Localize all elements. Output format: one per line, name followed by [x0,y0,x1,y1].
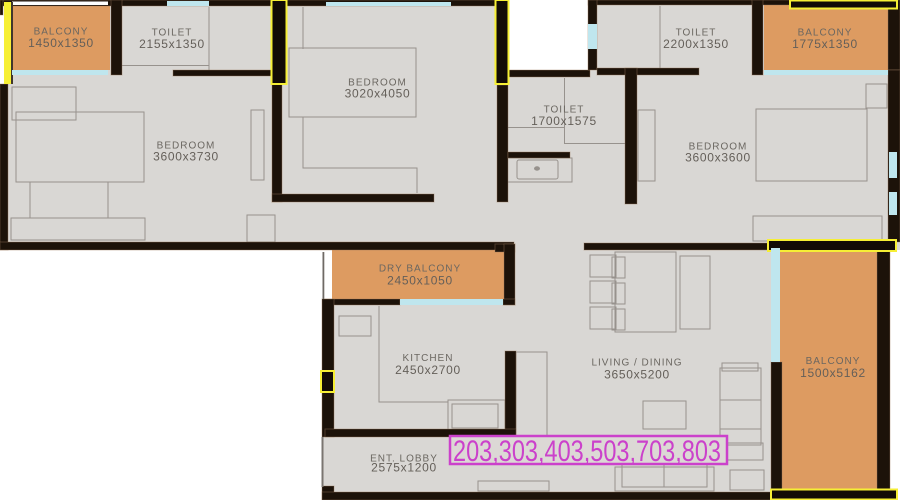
svg-text:1450x1350: 1450x1350 [28,36,94,50]
svg-text:203,303,403,503,703,803: 203,303,403,503,703,803 [453,435,721,468]
svg-text:1700x1575: 1700x1575 [531,114,597,128]
svg-text:2575x1200: 2575x1200 [371,460,437,474]
svg-text:2450x1050: 2450x1050 [387,274,453,288]
svg-text:1775x1350: 1775x1350 [792,37,858,51]
svg-text:2450x2700: 2450x2700 [395,363,461,377]
svg-text:3600x3730: 3600x3730 [153,150,219,164]
svg-text:3650x5200: 3650x5200 [604,368,670,382]
svg-text:2155x1350: 2155x1350 [139,37,205,51]
svg-text:2200x1350: 2200x1350 [663,37,729,51]
svg-text:1500x5162: 1500x5162 [800,366,866,380]
svg-text:3020x4050: 3020x4050 [345,87,411,101]
svg-text:3600x3600: 3600x3600 [685,151,751,165]
